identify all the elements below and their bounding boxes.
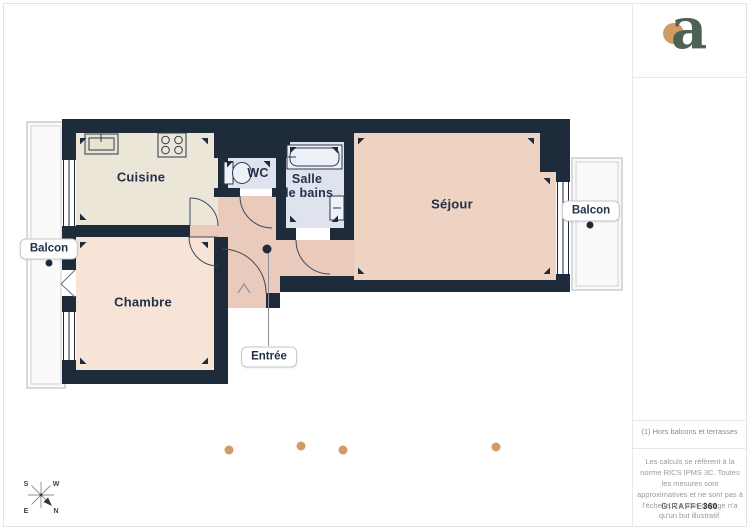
sidebar-rule-2 — [633, 420, 746, 421]
camera-point-dot — [492, 443, 501, 452]
compass-label-s: S — [24, 481, 29, 488]
camera-point-dot — [297, 442, 306, 451]
kitchen-sink-icon — [85, 134, 118, 154]
room-label-cuisine: Cuisine — [117, 170, 165, 185]
balcon-right-dot — [587, 222, 594, 229]
compass-rose: S W E N — [18, 472, 64, 518]
balcony-right-outline — [572, 158, 622, 290]
room-label-salle-de-bains: Salle de bains — [272, 172, 342, 200]
tag-balcon-right: Balcon — [562, 201, 620, 222]
sidebar-rule-1 — [633, 77, 746, 78]
camera-point-dot — [225, 446, 234, 455]
floor-plan-page: Cuisine WC Salle de bains Séjour Chambre… — [0, 0, 750, 530]
footnote-text: (1) Hors balcons et terrasses — [633, 427, 746, 436]
tag-entree: Entrée — [241, 347, 297, 368]
compass-label-w: W — [53, 481, 60, 488]
room-label-wc: WC — [247, 166, 268, 180]
compass-label-n: N — [53, 508, 58, 515]
brand-name: GIRAFFE — [661, 502, 703, 511]
entry-point-dot — [263, 245, 272, 254]
camera-point-dot — [339, 446, 348, 455]
room-label-chambre: Chambre — [114, 295, 172, 310]
logo-letter: a — [632, 0, 746, 63]
floor-plan-drawing — [0, 0, 750, 530]
compass-label-e: E — [24, 508, 29, 515]
sidebar-rule-3 — [633, 448, 746, 449]
balcon-left-dot — [46, 260, 53, 267]
brand-logo: GIRAFFE360 — [633, 502, 746, 511]
brand-suffix: 360 — [703, 502, 718, 511]
room-label-sejour: Séjour — [431, 197, 473, 212]
disclaimer-text: Les calculs se réfèrent à la norme RICS … — [637, 457, 743, 522]
tag-balcon-left: Balcon — [20, 239, 78, 260]
agency-logo: a — [632, 4, 746, 77]
